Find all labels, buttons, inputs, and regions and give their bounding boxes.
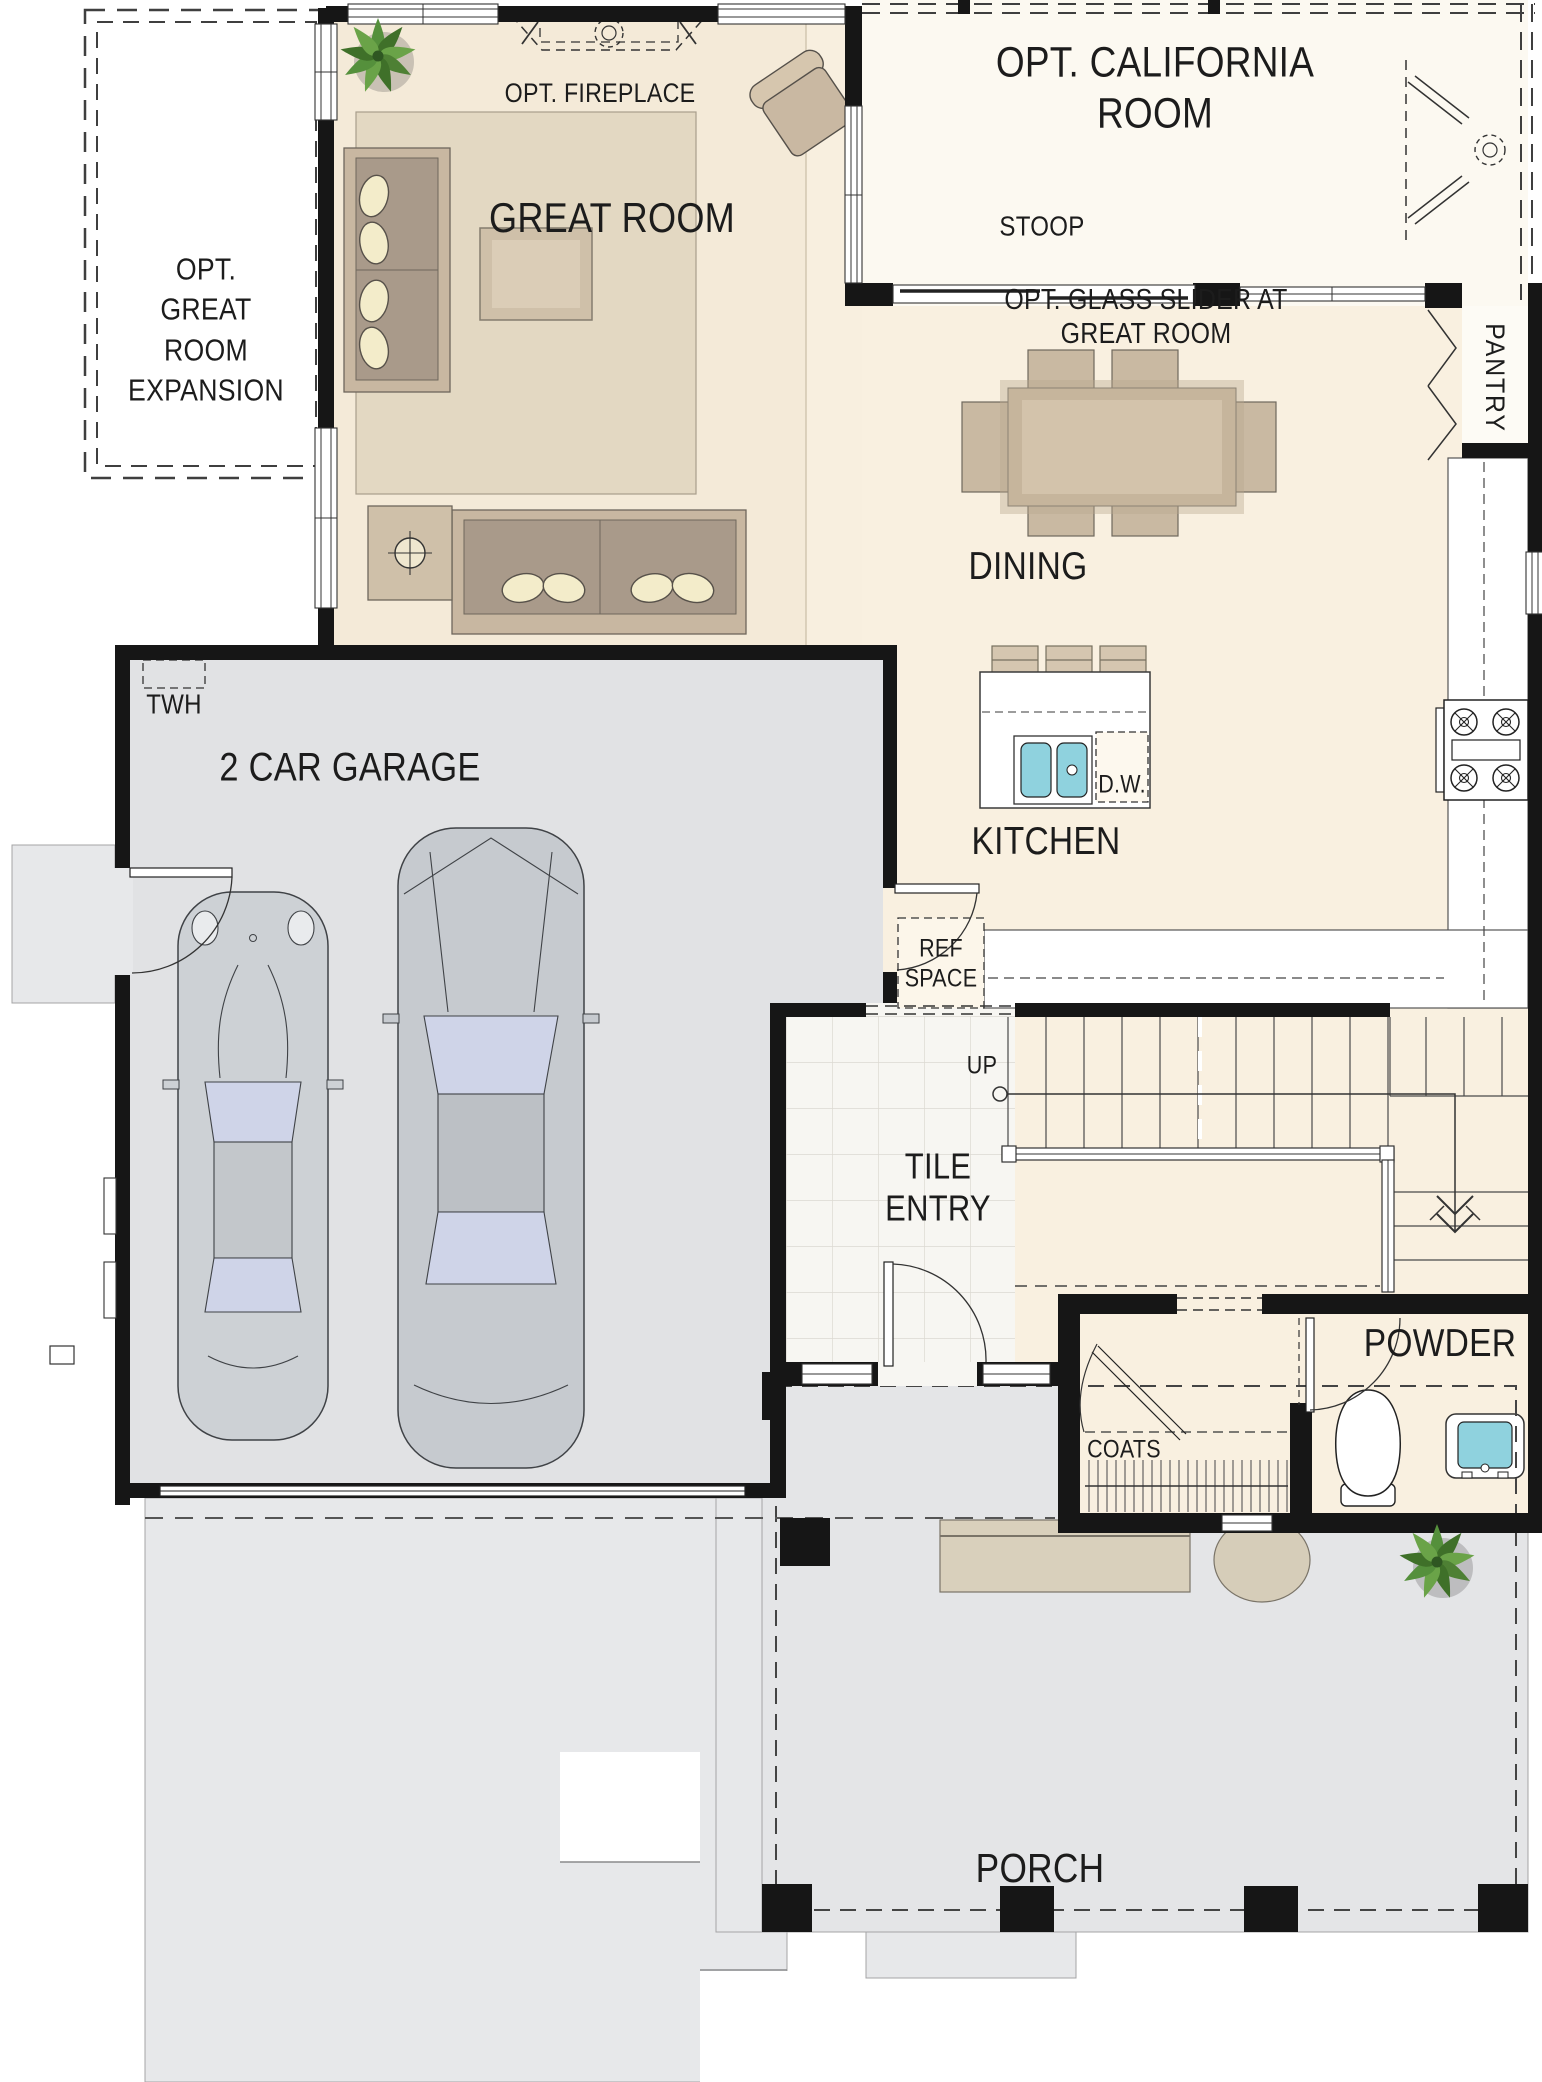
window [1526, 552, 1542, 614]
utility-meter [50, 1346, 74, 1364]
wall-vent [104, 1178, 116, 1234]
window [1222, 1515, 1272, 1531]
window [802, 1364, 872, 1384]
porch-post [780, 1518, 830, 1566]
car-2 [383, 828, 599, 1468]
coat-hangers [1085, 1460, 1288, 1512]
california-room-floor [862, 0, 1528, 306]
porch-post [1000, 1886, 1054, 1932]
range-cooktop [1436, 700, 1528, 800]
porch-post [762, 1884, 812, 1932]
window [315, 24, 337, 120]
window [718, 4, 845, 24]
glass-slider-door [893, 285, 1195, 303]
floor-plan-drawing [0, 0, 1542, 2082]
vanity-sink [1446, 1414, 1524, 1478]
window [845, 106, 862, 283]
side-table-lamp [368, 506, 452, 600]
great-room-expansion-outline [85, 10, 328, 478]
kitchen-island [980, 646, 1150, 808]
garage-door [160, 1486, 745, 1496]
ref-space [898, 918, 984, 1008]
wall-vent [104, 1262, 116, 1318]
car-1 [163, 892, 343, 1440]
window [1240, 287, 1425, 301]
floor-plan: OPT. GREAT ROOM EXPANSION GREAT ROOM OPT… [0, 0, 1542, 2082]
coffee-table [480, 228, 592, 320]
porch-post [1244, 1886, 1298, 1932]
tile-entry-floor [786, 1003, 1015, 1362]
window [348, 4, 498, 24]
porch-post [1478, 1884, 1528, 1932]
garage-side-landing [12, 845, 115, 1003]
toilet [1336, 1390, 1400, 1506]
island-sink [1014, 736, 1092, 804]
window [983, 1364, 1050, 1384]
window [315, 428, 337, 608]
pantry-floor [1462, 306, 1528, 445]
dishwasher [1096, 732, 1148, 802]
driveway [145, 1498, 788, 2082]
